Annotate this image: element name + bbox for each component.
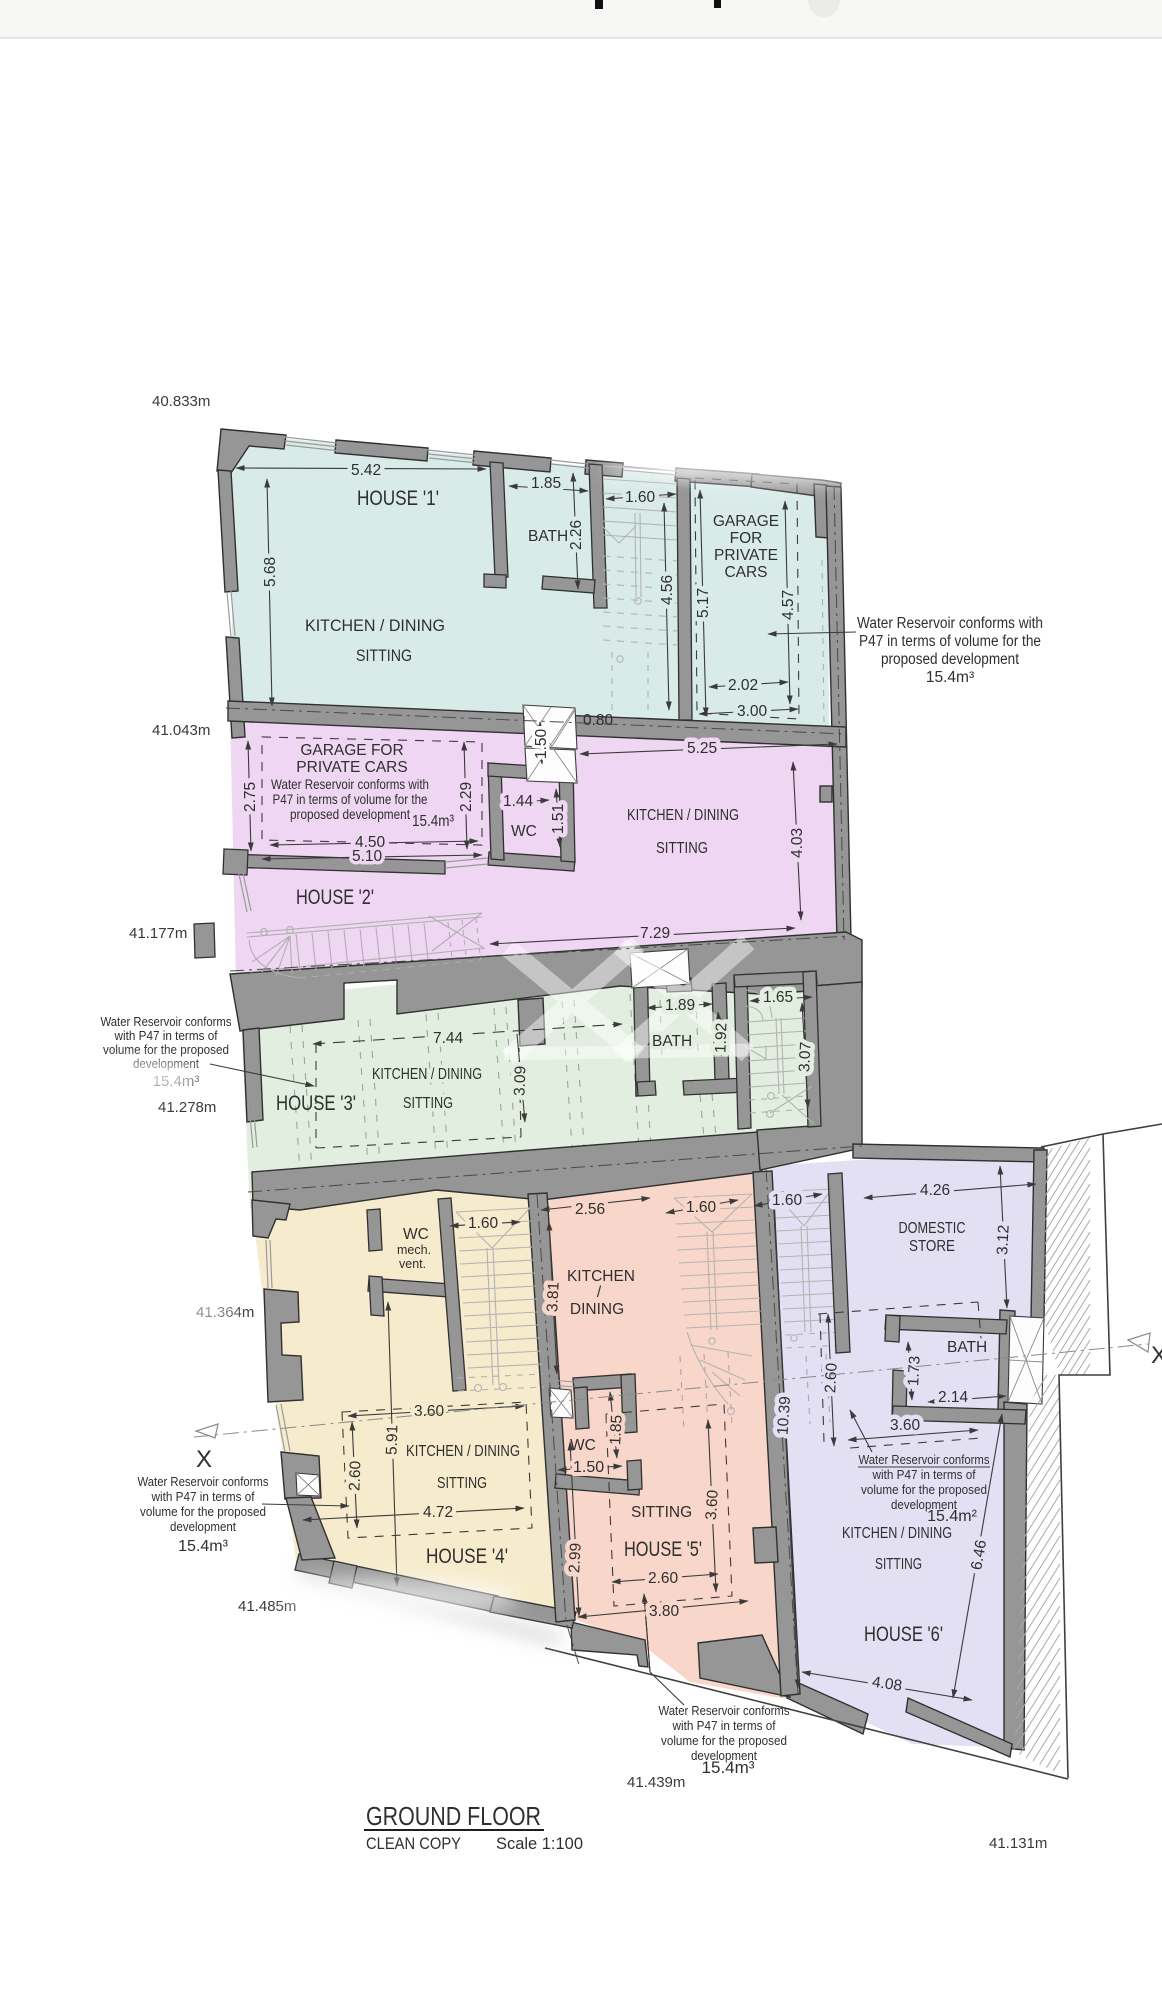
svg-text:5.91: 5.91 <box>383 1425 401 1456</box>
svg-text:2.02: 2.02 <box>728 677 758 694</box>
svg-text:PRIVATE: PRIVATE <box>714 547 778 564</box>
svg-text:2.75: 2.75 <box>242 782 259 812</box>
svg-text:3.07: 3.07 <box>796 1041 815 1072</box>
svg-text:SITTING: SITTING <box>437 1475 487 1492</box>
svg-text:4.26: 4.26 <box>920 1182 950 1199</box>
svg-text:P47 in terms of volume for the: P47 in terms of volume for the <box>273 791 428 807</box>
svg-text:PRIVATE CARS: PRIVATE CARS <box>296 759 407 776</box>
svg-text:KITCHEN / DINING: KITCHEN / DINING <box>406 1443 520 1460</box>
svg-text:2.56: 2.56 <box>575 1201 605 1218</box>
svg-text:3.09: 3.09 <box>511 1066 529 1097</box>
svg-text:1.85: 1.85 <box>607 1414 626 1445</box>
svg-text:7.44: 7.44 <box>433 1030 464 1047</box>
svg-text:X: X <box>196 1446 212 1473</box>
svg-text:4.56: 4.56 <box>659 575 676 605</box>
svg-text:0.80: 0.80 <box>583 712 614 729</box>
svg-text:Scale 1:100: Scale 1:100 <box>496 1834 583 1853</box>
svg-text:Water Reservoir conforms with: Water Reservoir conforms with <box>857 615 1043 632</box>
svg-text:DINING: DINING <box>570 1301 624 1318</box>
svg-text:3.60: 3.60 <box>703 1489 722 1521</box>
svg-text:41.043m: 41.043m <box>152 722 210 739</box>
svg-text:3.60: 3.60 <box>414 1403 445 1420</box>
svg-text:with P47 in terms of: with P47 in terms of <box>151 1489 255 1504</box>
svg-text:15.4m³: 15.4m³ <box>926 669 974 686</box>
svg-text:1.60: 1.60 <box>686 1199 717 1216</box>
svg-text:5.10: 5.10 <box>352 848 383 865</box>
svg-text:1.73: 1.73 <box>905 1355 924 1386</box>
svg-text:3.00: 3.00 <box>737 703 768 720</box>
svg-text:mech.: mech. <box>397 1243 431 1257</box>
svg-text:HOUSE '6': HOUSE '6' <box>864 1623 943 1646</box>
svg-text:KITCHEN / DINING: KITCHEN / DINING <box>305 616 445 635</box>
svg-text:3.80: 3.80 <box>649 1603 680 1620</box>
svg-text:proposed development: proposed development <box>290 806 410 822</box>
svg-text:Water Reservoir conforms: Water Reservoir conforms <box>138 1474 269 1489</box>
svg-text:1.50: 1.50 <box>573 1459 604 1476</box>
svg-text:FOR: FOR <box>730 530 763 547</box>
svg-text:1.85: 1.85 <box>531 475 561 492</box>
svg-text:GARAGE: GARAGE <box>713 513 779 530</box>
svg-text:40.833m: 40.833m <box>152 393 210 410</box>
svg-text:15.4m³: 15.4m³ <box>178 1538 228 1555</box>
svg-text:15.4m³: 15.4m³ <box>702 1758 755 1777</box>
svg-text:proposed development: proposed development <box>881 651 1020 668</box>
svg-text:/: / <box>597 1284 602 1301</box>
svg-text:15.4m³: 15.4m³ <box>412 813 455 830</box>
svg-text:3.81: 3.81 <box>544 1281 563 1312</box>
svg-text:1.44: 1.44 <box>503 793 534 810</box>
svg-text:volume for the proposed: volume for the proposed <box>861 1482 987 1497</box>
svg-text:41.131m: 41.131m <box>989 1835 1047 1852</box>
svg-text:KITCHEN / DINING: KITCHEN / DINING <box>372 1066 482 1083</box>
svg-text:2.14: 2.14 <box>938 1389 969 1406</box>
svg-text:CLEAN COPY: CLEAN COPY <box>366 1834 461 1853</box>
svg-text:volume for the proposed: volume for the proposed <box>103 1042 229 1057</box>
svg-text:BATH: BATH <box>528 528 568 545</box>
svg-text:SITTING: SITTING <box>875 1556 922 1573</box>
svg-text:1.89: 1.89 <box>665 997 695 1014</box>
svg-text:development: development <box>170 1519 236 1534</box>
svg-text:2.60: 2.60 <box>648 1570 679 1587</box>
svg-text:1.65: 1.65 <box>763 989 793 1006</box>
svg-text:2.26: 2.26 <box>568 520 585 550</box>
svg-text:SITTING: SITTING <box>403 1095 453 1112</box>
svg-text:5.25: 5.25 <box>687 740 717 757</box>
svg-text:GARAGE FOR: GARAGE FOR <box>300 742 403 759</box>
svg-text:3.60: 3.60 <box>890 1417 921 1434</box>
svg-text:SITTING: SITTING <box>356 646 412 665</box>
svg-text:4.03: 4.03 <box>789 828 806 858</box>
svg-text:with P47 in terms of: with P47 in terms of <box>114 1028 218 1043</box>
svg-text:KITCHEN: KITCHEN <box>567 1268 635 1285</box>
svg-text:GROUND FLOOR: GROUND FLOOR <box>366 1801 541 1831</box>
svg-text:X: X <box>1151 1342 1162 1369</box>
svg-text:HOUSE '1': HOUSE '1' <box>357 487 439 510</box>
svg-text:P47 in terms of volume for the: P47 in terms of volume for the <box>859 633 1041 650</box>
svg-text:2.99: 2.99 <box>566 1542 585 1573</box>
svg-text:KITCHEN / DINING: KITCHEN / DINING <box>842 1525 952 1542</box>
svg-text:BATH: BATH <box>652 1033 692 1050</box>
svg-text:SITTING: SITTING <box>656 840 708 857</box>
svg-text:4.57: 4.57 <box>780 590 797 620</box>
svg-text:BATH: BATH <box>947 1339 987 1356</box>
svg-text:WC: WC <box>511 823 537 840</box>
svg-text:5.42: 5.42 <box>351 462 381 479</box>
svg-text:HOUSE '3': HOUSE '3' <box>276 1092 356 1115</box>
svg-text:with P47 in terms of: with P47 in terms of <box>872 1467 976 1482</box>
svg-text:volume for the proposed: volume for the proposed <box>140 1504 266 1519</box>
svg-text:1.60: 1.60 <box>468 1215 499 1232</box>
svg-text:HOUSE '5': HOUSE '5' <box>624 1538 702 1561</box>
svg-text:HOUSE '2': HOUSE '2' <box>296 886 374 909</box>
svg-text:STORE: STORE <box>909 1238 955 1255</box>
svg-text:5.17: 5.17 <box>695 588 712 618</box>
svg-text:5.68: 5.68 <box>262 557 279 587</box>
svg-text:CARS: CARS <box>724 564 767 581</box>
svg-text:volume for the proposed: volume for the proposed <box>661 1733 787 1748</box>
svg-text:3.12: 3.12 <box>994 1224 1013 1255</box>
svg-text:7.29: 7.29 <box>640 925 670 942</box>
svg-text:4.72: 4.72 <box>423 1504 453 1521</box>
svg-text:vent.: vent. <box>399 1257 426 1271</box>
svg-text:1.92: 1.92 <box>712 1023 730 1054</box>
svg-text:with P47 in terms of: with P47 in terms of <box>672 1718 776 1733</box>
svg-text:1.51: 1.51 <box>550 804 567 834</box>
svg-text:2.29: 2.29 <box>458 782 475 812</box>
svg-text:SITTING: SITTING <box>631 1504 692 1521</box>
svg-text:2.60: 2.60 <box>822 1362 841 1393</box>
svg-text:41.278m: 41.278m <box>158 1099 216 1116</box>
svg-text:DOMESTIC: DOMESTIC <box>899 1220 966 1237</box>
svg-text:Water Reservoir conforms: Water Reservoir conforms <box>659 1703 790 1718</box>
svg-text:10.39: 10.39 <box>774 1396 794 1436</box>
svg-text:Water Reservoir conforms: Water Reservoir conforms <box>859 1452 990 1467</box>
svg-text:1.60: 1.60 <box>625 489 656 506</box>
svg-text:HOUSE '4': HOUSE '4' <box>426 1545 508 1568</box>
svg-text:15.4m²: 15.4m² <box>927 1508 977 1525</box>
svg-text:KITCHEN / DINING: KITCHEN / DINING <box>627 807 739 824</box>
svg-text:Water Reservoir conforms with: Water Reservoir conforms with <box>271 776 429 792</box>
svg-text:41.177m: 41.177m <box>129 925 187 942</box>
svg-text:Water Reservoir conforms: Water Reservoir conforms <box>101 1014 232 1029</box>
svg-text:WC: WC <box>403 1226 429 1243</box>
svg-text:41.439m: 41.439m <box>627 1774 685 1791</box>
svg-text:WC: WC <box>570 1437 596 1454</box>
svg-text:1.60: 1.60 <box>772 1192 803 1209</box>
svg-text:1.50: 1.50 <box>533 728 550 759</box>
svg-text:2.60: 2.60 <box>346 1460 364 1491</box>
